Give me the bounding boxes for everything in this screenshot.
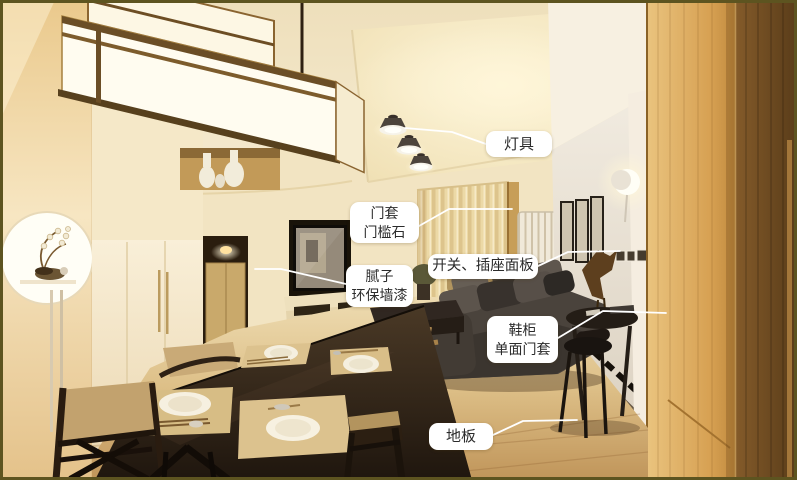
display-shelf-vases bbox=[180, 148, 280, 190]
tv bbox=[289, 220, 351, 296]
shoe-cabinet bbox=[646, 0, 737, 480]
annotation-label-putty-paint: 腻子 环保墙漆 bbox=[346, 265, 413, 307]
annotated-room-photo: 灯具 门套 门槛石 开关、插座面板 腻子 环保墙漆 鞋柜 单面门套 地板 bbox=[0, 0, 797, 480]
annotation-text: 腻子 bbox=[366, 267, 394, 286]
annotation-text: 门槛石 bbox=[364, 223, 406, 242]
annotation-text: 灯具 bbox=[504, 135, 534, 154]
annotation-label-switch-socket: 开关、插座面板 bbox=[428, 254, 538, 279]
annotation-text: 地板 bbox=[446, 427, 476, 446]
annotation-label-floor: 地板 bbox=[429, 423, 493, 450]
annotation-text: 鞋柜 bbox=[509, 321, 537, 340]
annotation-text: 环保墙漆 bbox=[352, 286, 408, 305]
annotation-text: 单面门套 bbox=[495, 340, 551, 359]
wood-column bbox=[735, 0, 794, 480]
annotation-label-lighting: 灯具 bbox=[486, 131, 552, 157]
annotation-text: 开关、插座面板 bbox=[432, 257, 534, 276]
annotation-label-shoe-cabinet: 鞋柜 单面门套 bbox=[487, 316, 558, 363]
annotation-label-door-casing: 门套 门槛石 bbox=[350, 202, 419, 243]
annotation-text: 门套 bbox=[371, 204, 399, 223]
switch-socket-panels bbox=[616, 250, 647, 261]
